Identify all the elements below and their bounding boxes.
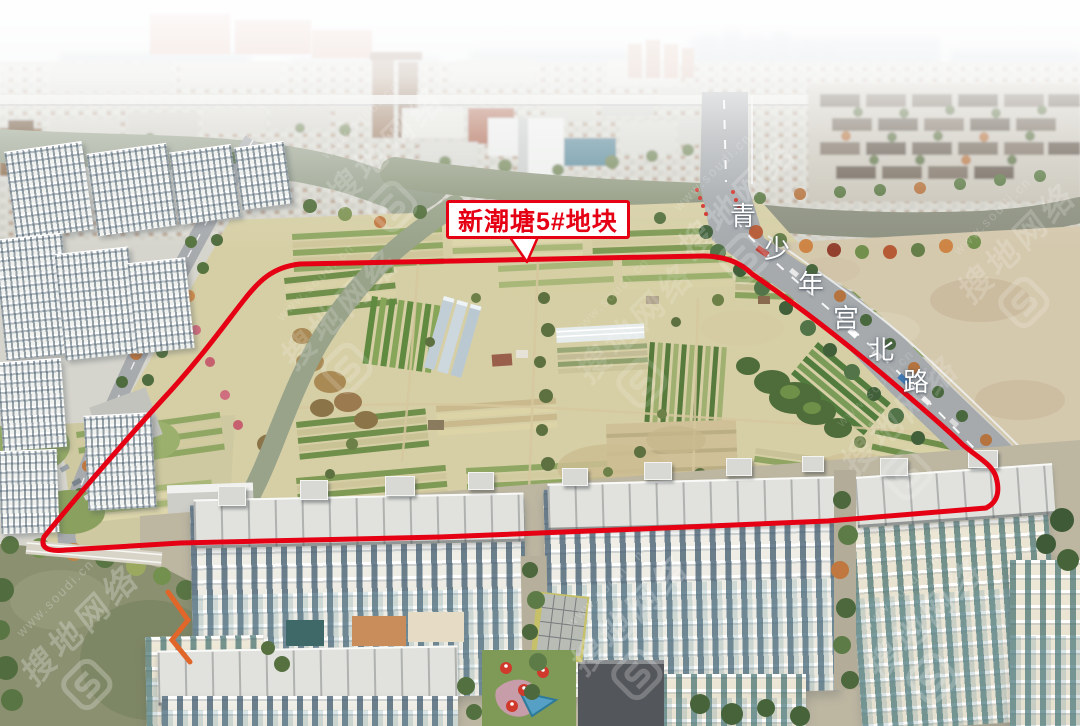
- watermark-url: www.soudi.cn: [568, 254, 652, 338]
- villas-district: [808, 84, 1080, 202]
- residential-tower: [127, 257, 194, 354]
- parcel-label-text: 新潮塘5#地块: [458, 202, 618, 238]
- roof-stair-box: [726, 458, 752, 476]
- watermark: www.soudi.cn 搜地网络: [934, 158, 1080, 344]
- soudi-logo-icon: [361, 175, 423, 237]
- watermark-url: www.soudi.cn: [273, 240, 357, 324]
- watermark-brand: 搜地网络: [316, 71, 453, 217]
- building-roof: [547, 476, 836, 531]
- residential-tower: [4, 141, 94, 240]
- roof-stair-box: [880, 458, 908, 476]
- watermark-brand: 搜地网络: [11, 549, 148, 695]
- residential-tower: [84, 412, 157, 510]
- roof-stair-box: [802, 456, 824, 472]
- apartment-building: [162, 696, 458, 726]
- residential-tower: [169, 144, 241, 225]
- aerial-photo: www.soudi.cn 搜地网络 www.soudi.cn 搜地网络 www.…: [0, 0, 1080, 726]
- roof-stair-box: [385, 476, 415, 496]
- roof-stair-box: [218, 486, 246, 506]
- watermark: www.soudi.cn 搜地网络: [552, 238, 738, 424]
- residential-tower: [234, 141, 292, 210]
- residential-tower: [0, 449, 59, 534]
- apartment-building: [1010, 560, 1080, 726]
- roof-stair-box: [968, 450, 998, 468]
- roof-stair-box: [300, 480, 328, 500]
- distant-skyline: [60, 30, 1080, 90]
- road-name-char: 少: [762, 229, 792, 266]
- road-name-char: 年: [796, 264, 826, 301]
- watermark-url: www.soudi.cn: [318, 78, 402, 162]
- riverbank-trees: [303, 170, 1046, 259]
- apartment-building: [646, 674, 806, 726]
- sky: [0, 0, 1080, 118]
- soudi-logo-icon: [611, 351, 673, 413]
- hoop-houses: [556, 323, 648, 374]
- road-name-char: 青: [728, 196, 758, 233]
- parcel-label-bubble: 新潮塘5#地块: [446, 200, 630, 239]
- roof-stair-box: [562, 468, 588, 486]
- weir-bridge: [26, 540, 163, 566]
- watermark-url: www.soudi.cn: [950, 174, 1034, 258]
- field-plots: [76, 209, 972, 522]
- watermark: www.soudi.cn 搜地网络: [257, 224, 443, 410]
- residential-tower: [0, 358, 67, 451]
- residential-tower: [87, 143, 178, 236]
- soudi-logo-icon: [993, 271, 1055, 333]
- roof-stair-box: [468, 472, 494, 490]
- watermark-brand: 搜地网络: [271, 233, 408, 379]
- greenhouses: [424, 296, 482, 378]
- soudi-logo-icon: [316, 337, 378, 399]
- elevated-road: [0, 95, 1080, 106]
- road-name-char: 路: [901, 362, 931, 399]
- watermark-brand: 搜地网络: [948, 167, 1080, 313]
- watermark-url: www.soudi.cn: [13, 556, 97, 640]
- vehicles: [755, 245, 959, 427]
- road-name-char: 宫: [831, 298, 861, 335]
- road-name-char: 北: [866, 330, 896, 367]
- soudi-logo-icon: [56, 653, 118, 715]
- roof-stair-box: [644, 462, 672, 480]
- watermark-brand: 搜地网络: [566, 247, 703, 393]
